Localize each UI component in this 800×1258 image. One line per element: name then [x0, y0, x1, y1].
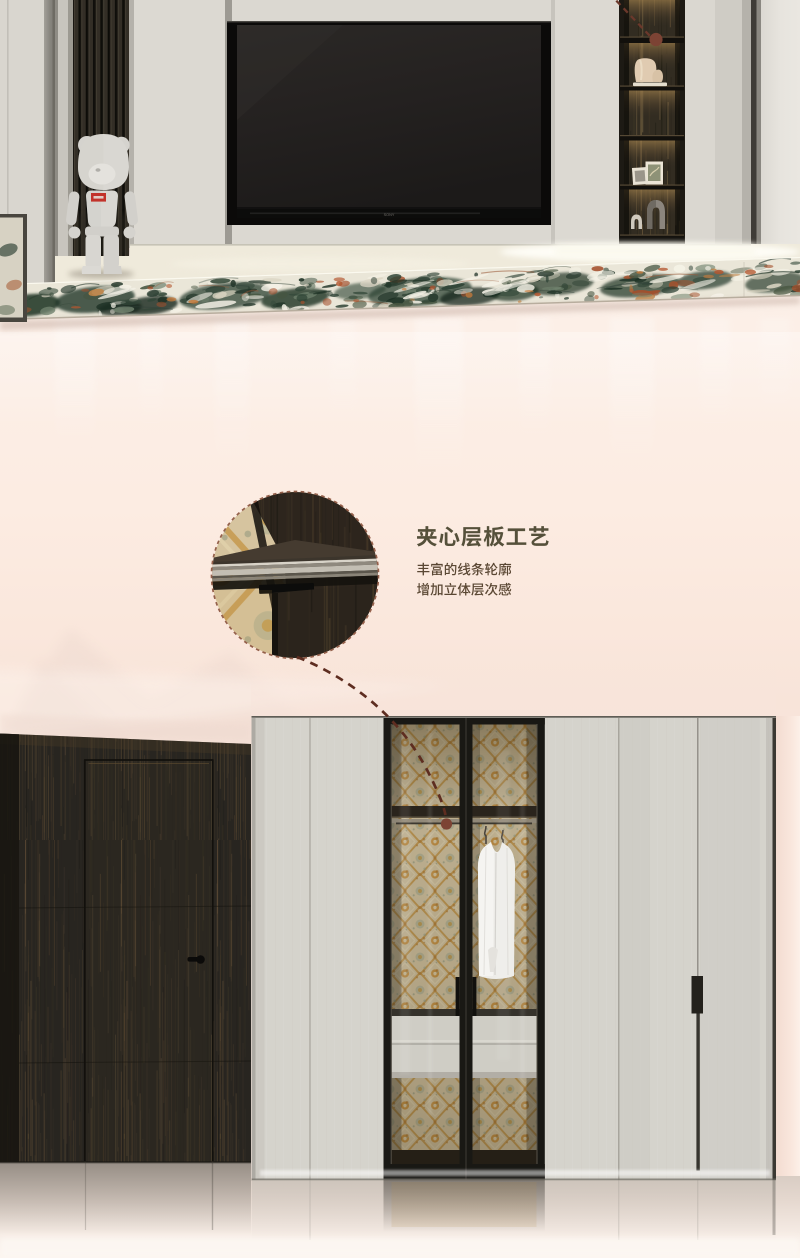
svg-text:SONY: SONY: [384, 213, 395, 217]
